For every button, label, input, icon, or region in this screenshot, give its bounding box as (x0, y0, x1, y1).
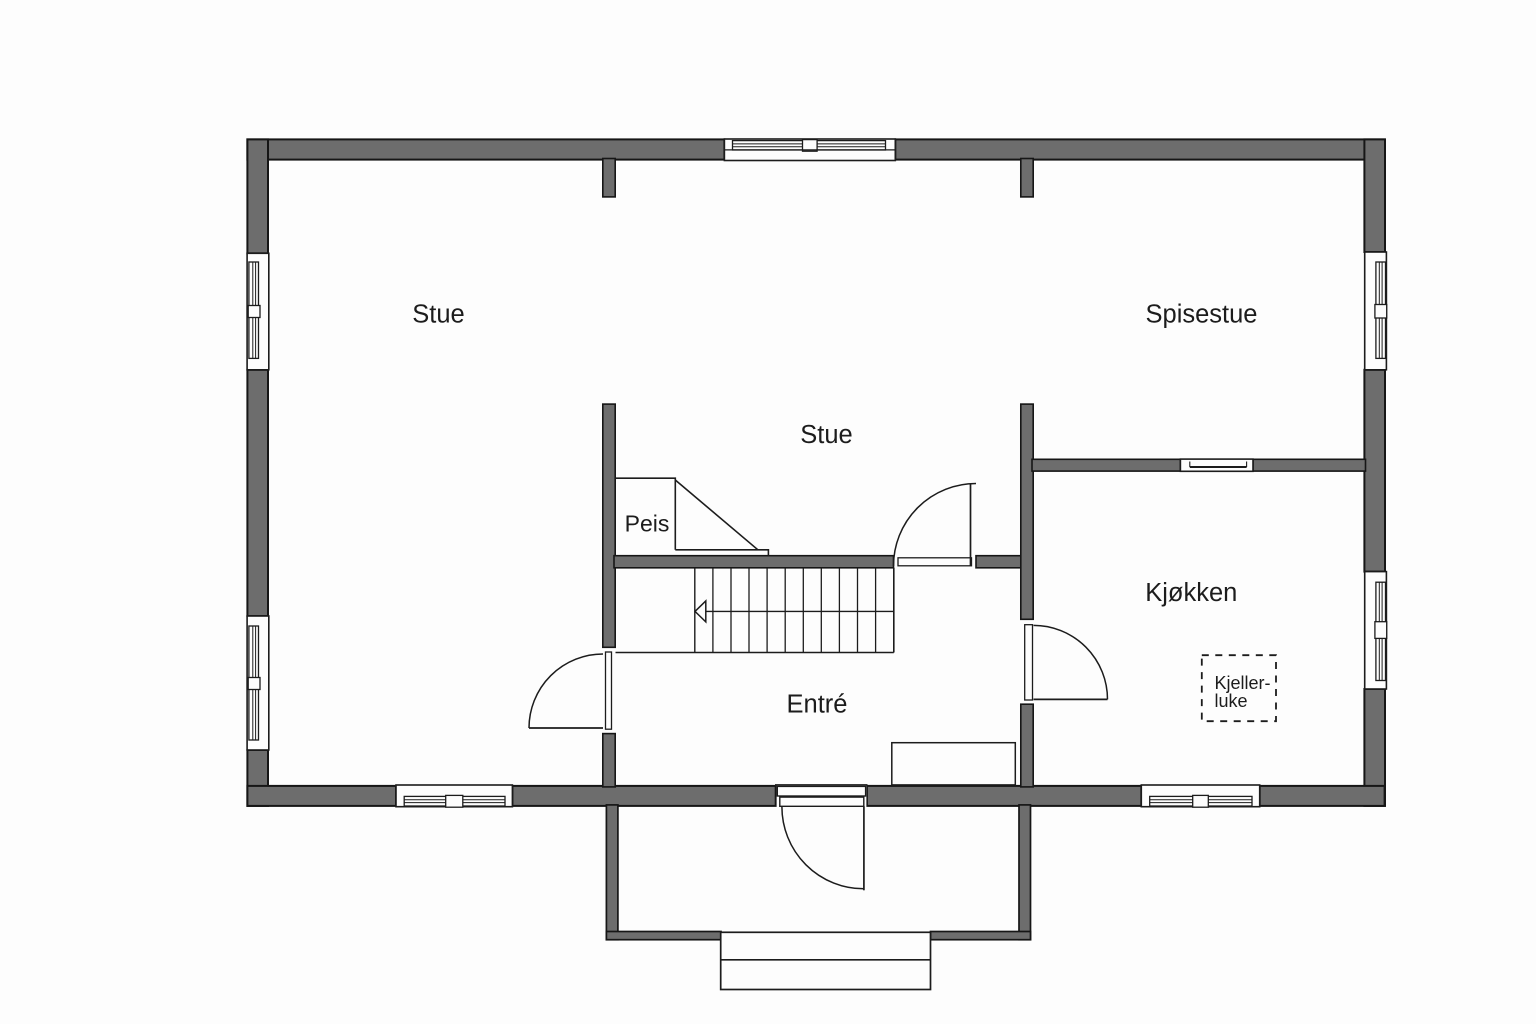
svg-text:Stue: Stue (800, 421, 852, 449)
svg-text:Stue: Stue (412, 300, 464, 328)
svg-text:Spisestue: Spisestue (1146, 300, 1258, 328)
svg-text:Kjøkken: Kjøkken (1145, 579, 1237, 607)
svg-text:Entré: Entré (787, 691, 848, 719)
svg-text:luke: luke (1215, 691, 1248, 711)
svg-text:Kjeller-: Kjeller- (1215, 673, 1271, 693)
svg-text:Peis: Peis (625, 510, 670, 536)
